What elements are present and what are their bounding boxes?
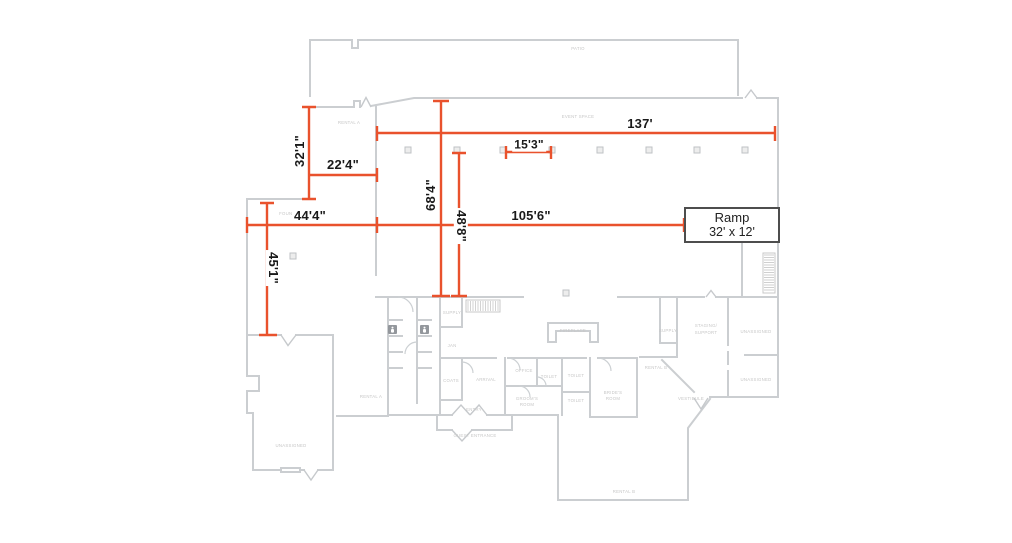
room-label-office: OFFICE xyxy=(515,368,532,373)
column xyxy=(742,147,748,153)
restroom-men-icon xyxy=(420,325,429,334)
room-label-patio: PATIO xyxy=(571,46,585,51)
dimension-48-8: 48'8" xyxy=(454,208,468,244)
room-label-vestibule: VESTIBULE xyxy=(678,396,704,401)
room-label-rental-b-2: RENTAL B xyxy=(613,489,636,494)
room-label-unassigned-3: UNASSIGNED xyxy=(741,377,772,382)
room-label-event-space: EVENT SPACE xyxy=(562,114,594,119)
room-label-rental-a-2: RENTAL A xyxy=(360,394,382,399)
room-label-unassigned: UNASSIGNED xyxy=(276,443,307,448)
rental-a-door xyxy=(361,98,371,108)
room-label-rental-b: RENTAL B xyxy=(645,365,668,370)
dimension-137: 137' xyxy=(625,117,655,131)
room-label-brides: BRIDE'S xyxy=(604,390,623,395)
room-label-toilet-2: TOILET xyxy=(568,373,585,378)
south-walls xyxy=(337,415,637,417)
restroom-women-icon xyxy=(388,325,397,334)
room-labels: PATIO EVENT SPACE RENTAL A FOUNTAIN RENT… xyxy=(276,46,772,494)
ramp-callout-size: 32' x 12' xyxy=(709,225,755,240)
room-label-staging: STAGING/ xyxy=(695,323,718,328)
room-label-supply-2: SUPPLY xyxy=(659,328,677,333)
room-label-coats: COATS xyxy=(443,378,459,383)
dim-line-137 xyxy=(377,126,775,141)
room-label-grooms-2: ROOM xyxy=(520,402,535,407)
dimension-15-3: 15'3" xyxy=(512,139,546,152)
walls xyxy=(247,40,778,500)
unassigned-room-wall xyxy=(247,335,333,472)
column xyxy=(597,147,603,153)
stair-hatch xyxy=(466,300,500,312)
column xyxy=(405,147,411,153)
room-label-brides-2: ROOM xyxy=(606,396,621,401)
patio-wall xyxy=(310,40,738,96)
dimension-68-4: 68'4" xyxy=(424,177,438,213)
room-label-arrival: ARRIVAL xyxy=(476,377,496,382)
right-rooms-walls xyxy=(640,297,778,397)
dimension-32-1: 32'1" xyxy=(293,133,307,169)
room-label-jan: JAN xyxy=(448,343,457,348)
rental-a-top-wall xyxy=(309,101,360,107)
room-label-entry: ENTRY xyxy=(466,407,482,412)
restroom-walls xyxy=(388,297,440,415)
rental-b-wall xyxy=(558,399,710,500)
column xyxy=(646,147,652,153)
floor-plan: PATIO EVENT SPACE RENTAL A FOUNTAIN RENT… xyxy=(0,0,1012,543)
room-label-staging-2: SUPPORT xyxy=(695,330,718,335)
room-label-grooms: GROOM'S xyxy=(516,396,538,401)
room-label-guest-entrance: GUEST ENTRANCE xyxy=(453,433,496,438)
room-label-fireplace: FIREPLACE xyxy=(560,328,586,333)
unassigned-exit-door xyxy=(304,470,318,480)
room-label-supply: SUPPLY xyxy=(443,310,461,315)
floor-plan-drawing: PATIO EVENT SPACE RENTAL A FOUNTAIN RENT… xyxy=(0,0,1012,543)
dimension-45-1: 45'1" xyxy=(266,250,280,286)
event-space-top-wall xyxy=(371,98,778,397)
patio-door xyxy=(745,90,757,98)
dimension-22-4: 22'4" xyxy=(325,158,361,172)
column xyxy=(290,253,296,259)
room-label-unassigned-2: UNASSIGNED xyxy=(741,329,772,334)
office-toilet-walls xyxy=(505,358,590,415)
central-top-wall xyxy=(376,241,778,297)
dimension-44-4: 44'4" xyxy=(292,209,328,223)
dimension-105-6: 105'6" xyxy=(509,209,552,223)
room-label-toilet-1: TOILET xyxy=(541,374,558,379)
ramp-hatch xyxy=(763,253,775,293)
room-label-rental-a: RENTAL A xyxy=(338,120,360,125)
restroom-icons xyxy=(388,325,429,334)
column xyxy=(563,290,569,296)
right-rooms-door xyxy=(706,291,716,298)
ramp-callout-title: Ramp xyxy=(715,210,750,226)
entry-porch-wall xyxy=(437,415,512,430)
column xyxy=(694,147,700,153)
ramp-callout: Ramp 32' x 12' xyxy=(684,207,780,243)
unassigned-door xyxy=(281,335,296,346)
room-label-toilet-3: TOILET xyxy=(568,398,585,403)
